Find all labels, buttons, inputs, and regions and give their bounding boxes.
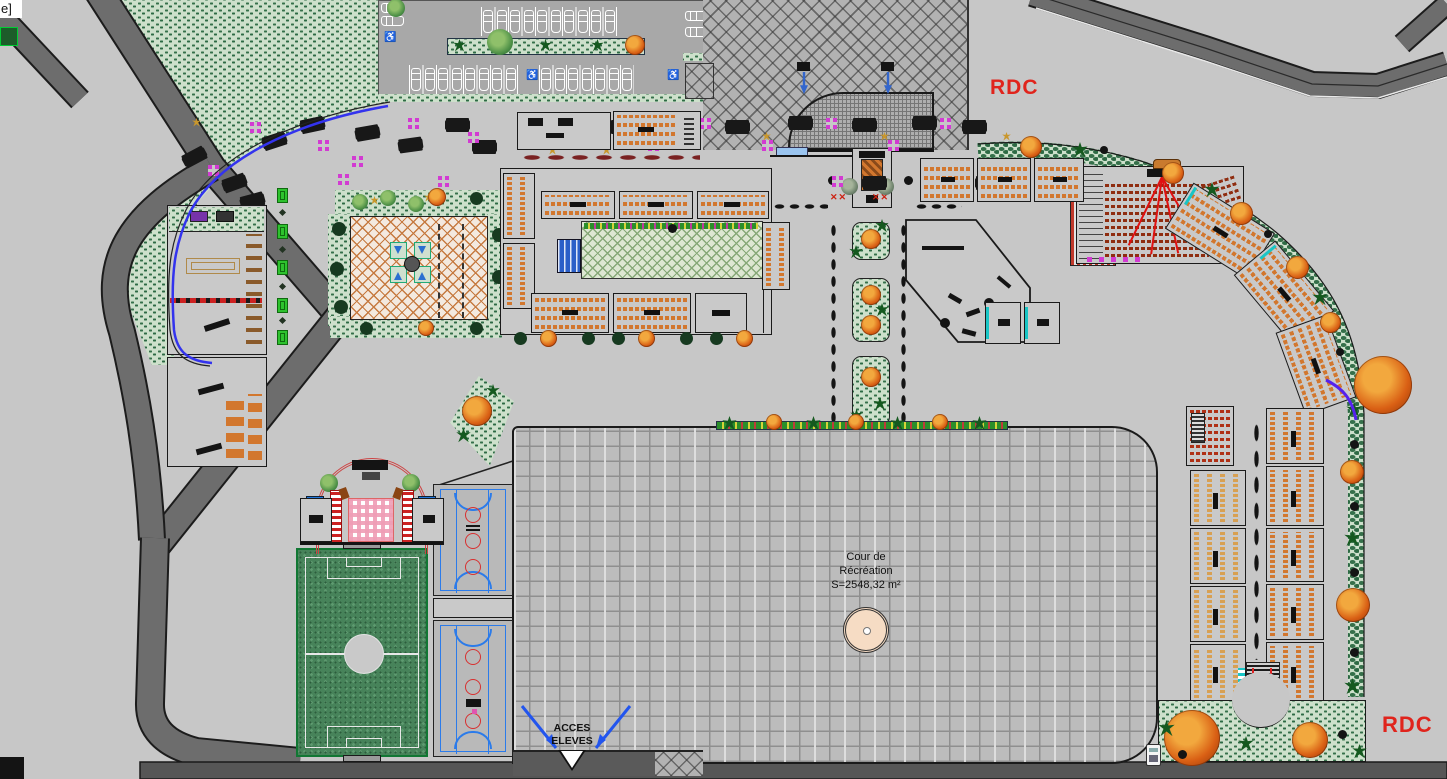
herringbone-patch [655,750,703,776]
corner-block [0,757,24,779]
layout-icon[interactable] [1146,744,1161,766]
access-label: ACCES ELEVES [536,722,608,748]
window-title-fragment: e] [0,0,22,18]
floor-label-bottom: RDC [1382,712,1433,738]
overlay-lines [0,0,1447,779]
layout-icon-bar [1149,748,1158,752]
boundary-blue-line [173,106,388,363]
corner-text: e] [1,1,12,16]
layout-icon-body [1149,755,1158,762]
floor-label-top: RDC [990,76,1039,100]
green-swatch [0,27,18,46]
access-arrow-icon [561,751,583,768]
cad-site-plan-viewport[interactable]: ♿ ♿ ♿ ✕✕ ✕✕ [0,0,1447,779]
access-label-line2: ELEVES [536,735,608,748]
access-label-line1: ACCES [536,722,608,735]
boundary-blue-arc [1326,380,1356,420]
